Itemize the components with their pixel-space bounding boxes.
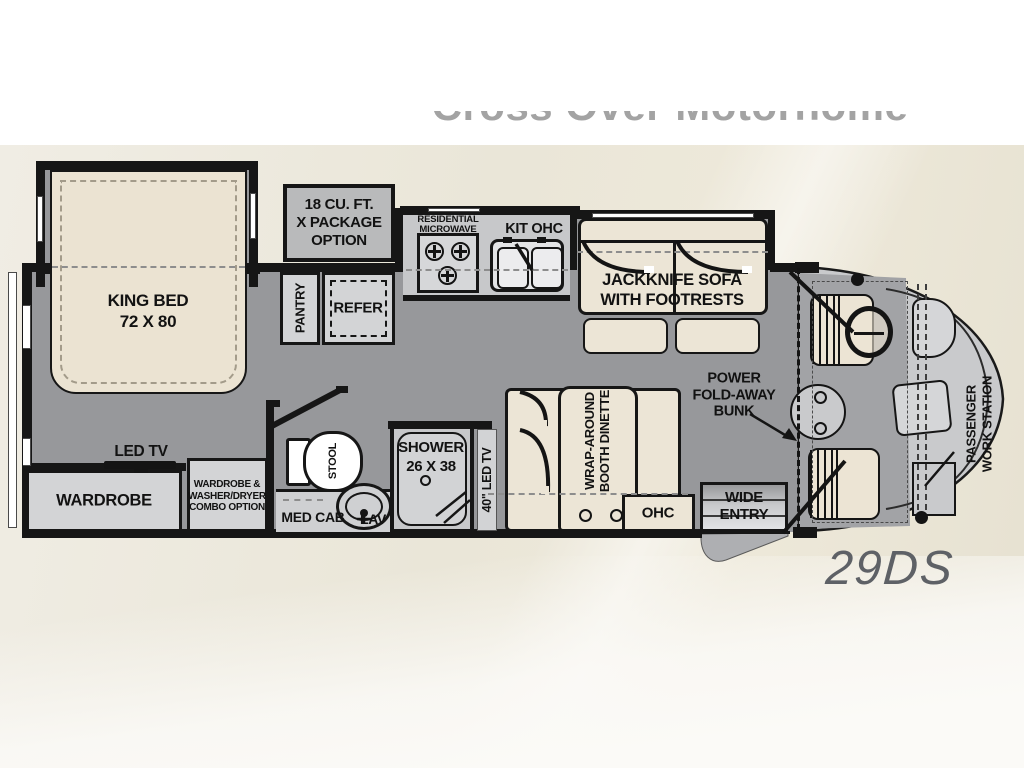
stool-label: STOOL [327, 436, 339, 486]
slideout-window [250, 193, 256, 239]
kitchen-sink [490, 239, 564, 292]
wide-entry-label: WIDE ENTRY [720, 489, 769, 523]
wardrobe-combo-label: WARDROBE & WASHER/DRYER COMBO OPTION [188, 479, 266, 514]
king-bed [50, 170, 247, 394]
dinette-label: WRAP-AROUND BOOTH DINETTE [582, 381, 612, 501]
dash-panel-line [917, 284, 919, 520]
sofa-label: JACKKNIFE SOFA WITH FOOTRESTS [600, 270, 743, 310]
rear-window [23, 438, 31, 466]
dinette-table-leg [579, 509, 592, 522]
refer-label: REFER [333, 300, 382, 317]
tv-40-label: 40" LED TV [480, 435, 494, 525]
dash-panel-line [925, 284, 927, 520]
slide-line-sofa [577, 251, 768, 253]
sofa-slideout-right-wall [768, 210, 775, 270]
kitchen-window [428, 208, 480, 212]
sofa-footrest [583, 318, 668, 354]
pantry-label: PANTRY [293, 278, 308, 338]
wall-stub [36, 263, 50, 274]
sink-bowl [531, 247, 563, 289]
page-title-clipped: Cross Over Motorhome [428, 111, 912, 146]
ohc-label: OHC [642, 505, 674, 522]
slideout-window [37, 196, 43, 242]
slide-line-kitchen [406, 269, 568, 271]
fold-away-bunk-line [797, 268, 800, 530]
lav-label: LAV [360, 511, 386, 527]
bed-slideout-top-wall [36, 161, 258, 170]
dinette-table-leg [610, 509, 623, 522]
wall-stub [336, 386, 348, 393]
med-cab-dash [283, 499, 323, 501]
work-station-label: PASSENGER WORK STATION [964, 354, 995, 494]
bedroom-tv-icon [104, 461, 176, 469]
sofa-slideout-left-wall [570, 210, 577, 270]
shower-label: SHOWER 26 X 38 [398, 438, 464, 476]
kit-ohc-label: KIT OHC [505, 221, 563, 237]
burner-icon [451, 242, 470, 261]
microwave-label: RESIDENTIAL MICROWAVE [417, 215, 478, 235]
bunk-label: POWER FOLD-AWAY BUNK [693, 370, 776, 420]
floorplan-page: Cross Over Motorhome [0, 0, 1024, 768]
seatbelt-dot [915, 511, 928, 524]
rear-window-strip [8, 272, 17, 528]
top-wall [256, 263, 400, 272]
wardrobe-label: WARDROBE [56, 492, 152, 511]
steering-wheel [845, 306, 893, 358]
rear-window [23, 305, 31, 349]
shower-drain [420, 475, 431, 486]
model-number: 29DS [824, 541, 956, 596]
cooktop [417, 233, 479, 293]
seatbelt-dot [851, 273, 864, 286]
king-bed-label: KING BED 72 X 80 [108, 290, 189, 332]
wall-stub [266, 400, 280, 407]
bedroom-tv-stand [134, 469, 148, 473]
burner-icon [425, 242, 444, 261]
bed-mattress-outline [60, 180, 237, 384]
slide-line-bed [52, 266, 245, 268]
sink-bowl [497, 247, 529, 289]
sofa-footrest [675, 318, 760, 354]
med-cab-label: MED CAB [281, 509, 344, 525]
x-package-label: 18 CU. FT. X PACKAGE OPTION [296, 196, 381, 250]
led-tv-label: LED TV [114, 443, 167, 461]
page-title: Cross Over Motorhome [428, 111, 912, 129]
kitchen-jog-wall [395, 208, 403, 272]
